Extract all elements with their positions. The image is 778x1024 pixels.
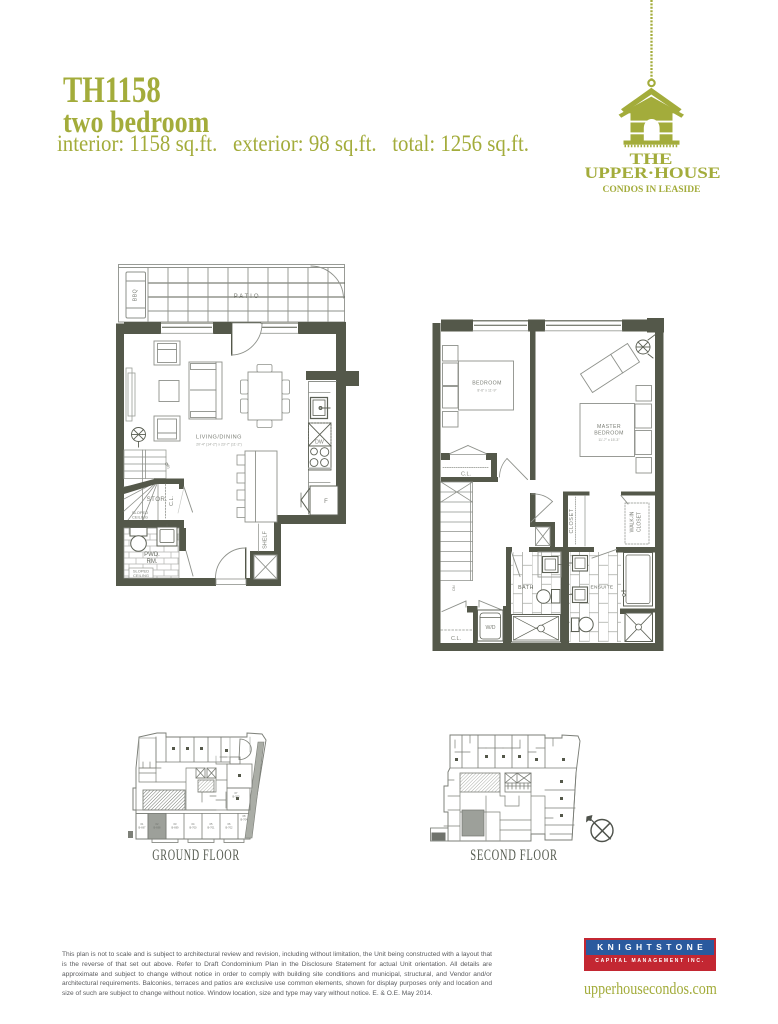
svg-text:B-699: B-699 [172, 825, 179, 829]
svg-text:CONDOS IN LEASIDE: CONDOS IN LEASIDE [603, 185, 701, 195]
svg-text:SHELF: SHELF [263, 530, 269, 548]
svg-text:11'-7" x 15'-3": 11'-7" x 15'-3" [598, 438, 620, 442]
svg-text:B-703: B-703 [233, 794, 240, 798]
svg-text:B-698: B-698 [154, 825, 161, 829]
svg-text:DW: DW [315, 440, 324, 446]
svg-text:8'-6" x 11'-9": 8'-6" x 11'-9" [477, 389, 497, 393]
svg-text:20'-4" (14'-2") x 23'-7" (11'-: 20'-4" (14'-2") x 23'-7" (11'-2") [196, 443, 242, 447]
svg-text:B-700: B-700 [190, 825, 197, 829]
svg-text:B-697: B-697 [139, 825, 146, 829]
svg-text:UPPER·HOUSE: UPPER·HOUSE [585, 165, 721, 182]
svg-text:B-701: B-701 [208, 825, 215, 829]
svg-text:BBQ: BBQ [133, 289, 139, 301]
svg-text:CEILING: CEILING [133, 573, 149, 578]
svg-text:C.L.: C.L. [451, 636, 462, 642]
svg-text:ENSUITE: ENSUITE [591, 585, 614, 591]
svg-text:W/D: W/D [485, 625, 495, 631]
svg-text:BEDROOM: BEDROOM [594, 431, 624, 437]
svg-text:CLOSET: CLOSET [637, 512, 643, 532]
svg-text:BATH: BATH [518, 585, 534, 591]
svg-text:WALK-IN: WALK-IN [630, 511, 636, 532]
svg-text:C.L.: C.L. [169, 495, 175, 506]
svg-text:CLOSET: CLOSET [569, 508, 575, 533]
svg-text:LIVING/DINING: LIVING/DINING [196, 435, 242, 441]
svg-text:B-704: B-704 [241, 817, 248, 821]
svg-text:UP: UP [167, 463, 171, 469]
svg-text:C.L.: C.L. [461, 472, 472, 478]
svg-text:STOR.: STOR. [147, 496, 168, 503]
svg-text:PWD.: PWD. [144, 552, 160, 558]
svg-text:MASTER: MASTER [597, 424, 621, 430]
svg-text:DN: DN [452, 585, 456, 591]
svg-text:RM.: RM. [147, 559, 158, 565]
svg-text:BEDROOM: BEDROOM [472, 381, 502, 387]
svg-text:B-702: B-702 [226, 825, 233, 829]
svg-text:F: F [324, 499, 328, 505]
svg-text:PATIO: PATIO [234, 293, 261, 300]
svg-text:CEILING: CEILING [132, 515, 148, 520]
